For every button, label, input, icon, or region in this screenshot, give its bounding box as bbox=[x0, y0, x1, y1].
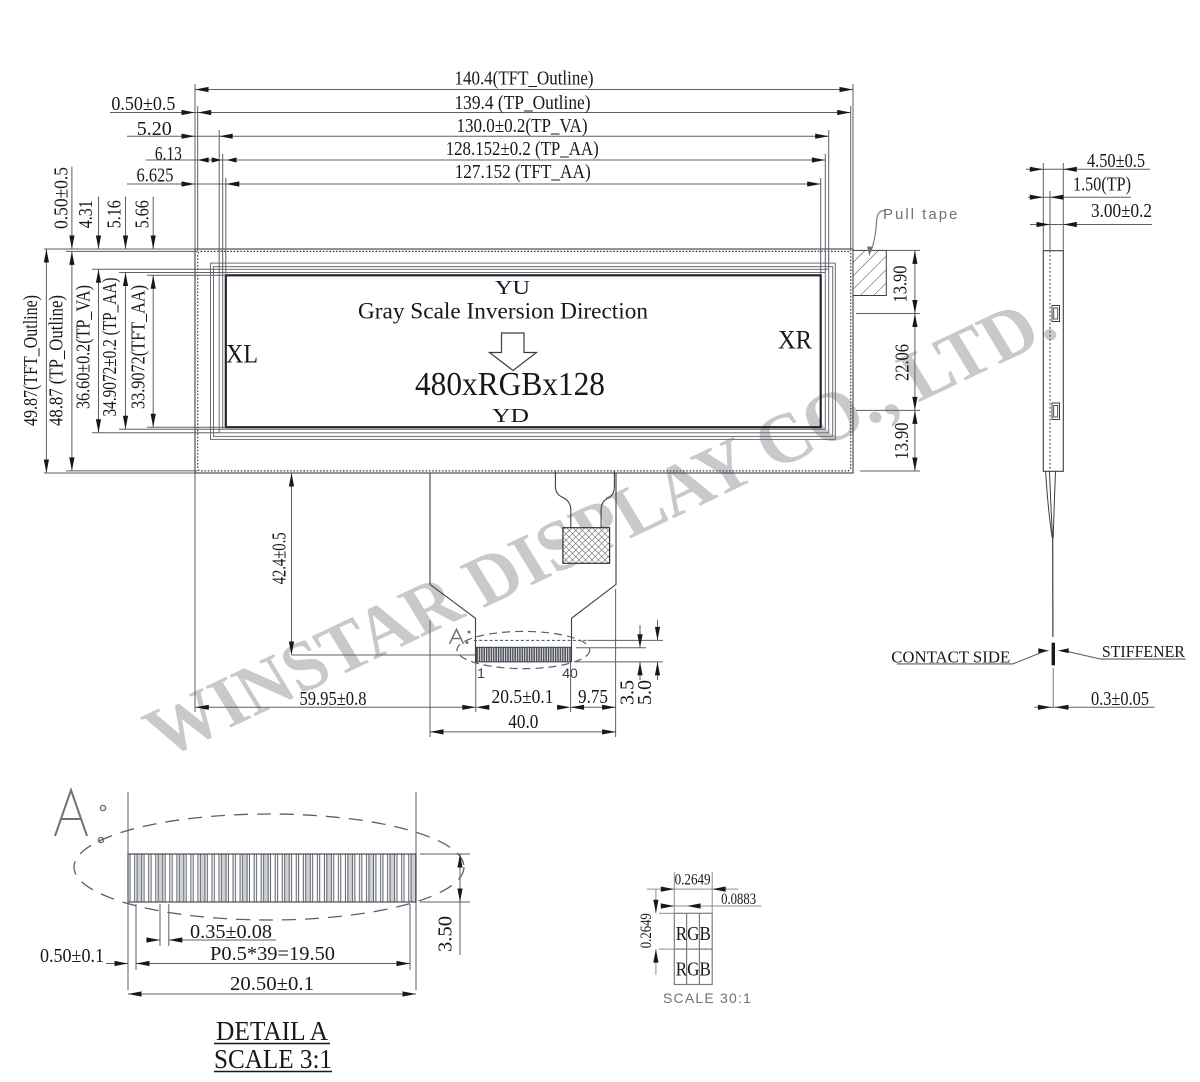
svg-text:130.0±0.2(TP_VA): 130.0±0.2(TP_VA) bbox=[457, 115, 588, 137]
svg-text:6.625: 6.625 bbox=[137, 165, 174, 187]
svg-text:3.50: 3.50 bbox=[435, 916, 457, 952]
svg-text:4.31: 4.31 bbox=[75, 200, 97, 228]
svg-text:48.87 (TP_Outline): 48.87 (TP_Outline) bbox=[45, 295, 67, 426]
svg-text:0.50±0.5: 0.50±0.5 bbox=[111, 93, 175, 115]
svg-text:Gray Scale Inversion Direction: Gray Scale Inversion Direction bbox=[358, 299, 648, 324]
svg-text:5.20: 5.20 bbox=[137, 118, 172, 140]
svg-text:6.13: 6.13 bbox=[155, 143, 182, 165]
svg-text:0.0883: 0.0883 bbox=[721, 891, 756, 908]
svg-text:0.50±0.1: 0.50±0.1 bbox=[40, 945, 104, 967]
svg-text:SCALE 3:1: SCALE 3:1 bbox=[214, 1044, 332, 1074]
svg-text:SCALE 30:1: SCALE 30:1 bbox=[663, 990, 752, 1006]
svg-text:4.50±0.5: 4.50±0.5 bbox=[1087, 150, 1145, 172]
svg-text:128.152±0.2 (TP_AA): 128.152±0.2 (TP_AA) bbox=[446, 138, 599, 160]
svg-text:20.5±0.1: 20.5±0.1 bbox=[492, 686, 554, 708]
svg-text:RGB: RGB bbox=[676, 923, 711, 945]
svg-text:1: 1 bbox=[477, 665, 485, 681]
svg-text:Pull tape: Pull tape bbox=[883, 206, 959, 223]
svg-text:0.3±0.05: 0.3±0.05 bbox=[1091, 688, 1149, 710]
svg-text:13.90: 13.90 bbox=[890, 266, 912, 303]
svg-text:RGB: RGB bbox=[676, 959, 711, 981]
svg-text:13.90: 13.90 bbox=[891, 423, 913, 460]
svg-text:5.66: 5.66 bbox=[132, 200, 154, 228]
svg-text:5.0: 5.0 bbox=[634, 680, 656, 705]
svg-text:42.4±0.5: 42.4±0.5 bbox=[269, 532, 291, 584]
svg-text:20.50±0.1: 20.50±0.1 bbox=[230, 973, 314, 995]
svg-text:5.16: 5.16 bbox=[103, 200, 125, 228]
svg-text:1.50(TP): 1.50(TP) bbox=[1073, 173, 1131, 195]
svg-text:3.00±0.2: 3.00±0.2 bbox=[1091, 200, 1152, 222]
svg-text:0.35±0.08: 0.35±0.08 bbox=[190, 921, 272, 943]
svg-text:0.50±0.5: 0.50±0.5 bbox=[50, 167, 72, 229]
svg-text:59.95±0.8: 59.95±0.8 bbox=[300, 688, 367, 710]
svg-text:40.0: 40.0 bbox=[508, 711, 538, 733]
svg-text:139.4 (TP_Outline): 139.4 (TP_Outline) bbox=[455, 92, 591, 114]
svg-text:22.06: 22.06 bbox=[892, 344, 914, 381]
svg-text:140.4(TFT_Outline): 140.4(TFT_Outline) bbox=[455, 67, 594, 89]
svg-text:0.2649: 0.2649 bbox=[638, 913, 655, 948]
svg-text:127.152 (TFT_AA): 127.152 (TFT_AA) bbox=[455, 161, 591, 183]
svg-text:DETAIL A: DETAIL A bbox=[216, 1016, 328, 1046]
svg-text:36.60±0.2(TP_VA): 36.60±0.2(TP_VA) bbox=[73, 285, 95, 409]
svg-text:STIFFENER: STIFFENER bbox=[1102, 642, 1186, 661]
svg-text:P0.5*39=19.50: P0.5*39=19.50 bbox=[210, 943, 335, 965]
svg-text:34.9072±0.2 (TP_AA): 34.9072±0.2 (TP_AA) bbox=[99, 278, 121, 417]
svg-text:480xRGBx128: 480xRGBx128 bbox=[415, 366, 605, 403]
svg-text:YU: YU bbox=[495, 277, 531, 299]
svg-text:33.9072(TFT_AA): 33.9072(TFT_AA) bbox=[127, 285, 149, 409]
svg-text:49.87(TFT_Outline): 49.87(TFT_Outline) bbox=[20, 295, 42, 426]
svg-text:YD: YD bbox=[492, 405, 529, 427]
svg-text:9.75: 9.75 bbox=[578, 686, 608, 708]
svg-text:XL: XL bbox=[226, 340, 258, 369]
svg-text:XR: XR bbox=[778, 326, 813, 355]
svg-text:0.2649: 0.2649 bbox=[675, 872, 711, 889]
